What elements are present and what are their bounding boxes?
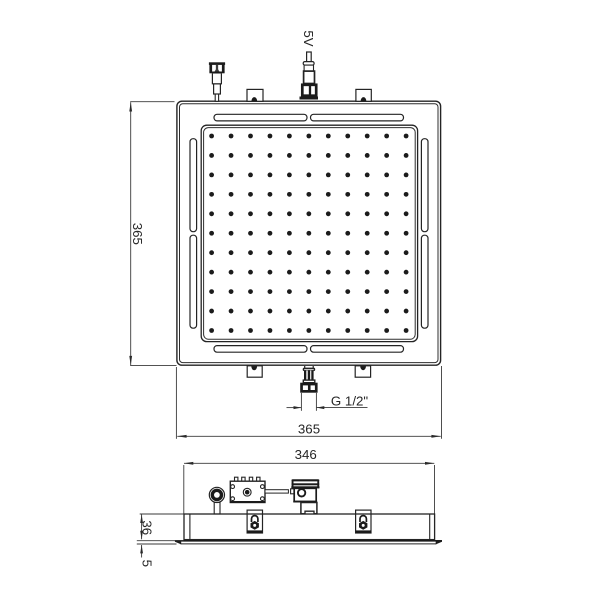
svg-text:36: 36 <box>140 520 155 535</box>
svg-text:365: 365 <box>130 223 145 245</box>
svg-text:365: 365 <box>298 422 320 437</box>
svg-text:5V: 5V <box>301 30 316 46</box>
svg-text:5: 5 <box>140 560 155 567</box>
svg-text:346: 346 <box>295 447 317 462</box>
svg-text:G 1/2": G 1/2" <box>331 393 369 408</box>
